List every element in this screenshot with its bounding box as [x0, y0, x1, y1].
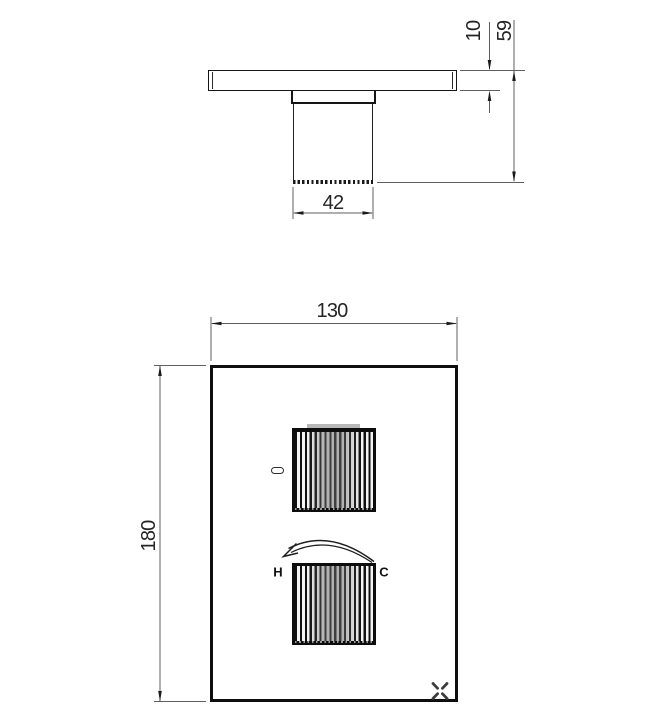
- dim-180-plate-height: [154, 366, 206, 702]
- hot-label: H: [273, 565, 282, 580]
- dim-59-total-depth: [377, 20, 524, 183]
- dim-label-plate-width: 130: [317, 301, 348, 321]
- dim-label-total-depth: 59: [495, 21, 515, 42]
- dim-label-knob-diameter: 42: [323, 193, 344, 213]
- rotation-arrow-icon: [284, 540, 375, 562]
- dim-label-plate-thickness: 10: [464, 21, 484, 42]
- dim-130-plate-width: [211, 317, 457, 361]
- dim-label-plate-height: 180: [139, 521, 159, 552]
- cold-label: C: [379, 565, 388, 580]
- brand-x-icon: [433, 684, 447, 699]
- technical-drawing-canvas: 10 59 42 130 180 H C: [0, 0, 651, 725]
- dimension-linework: [0, 0, 651, 725]
